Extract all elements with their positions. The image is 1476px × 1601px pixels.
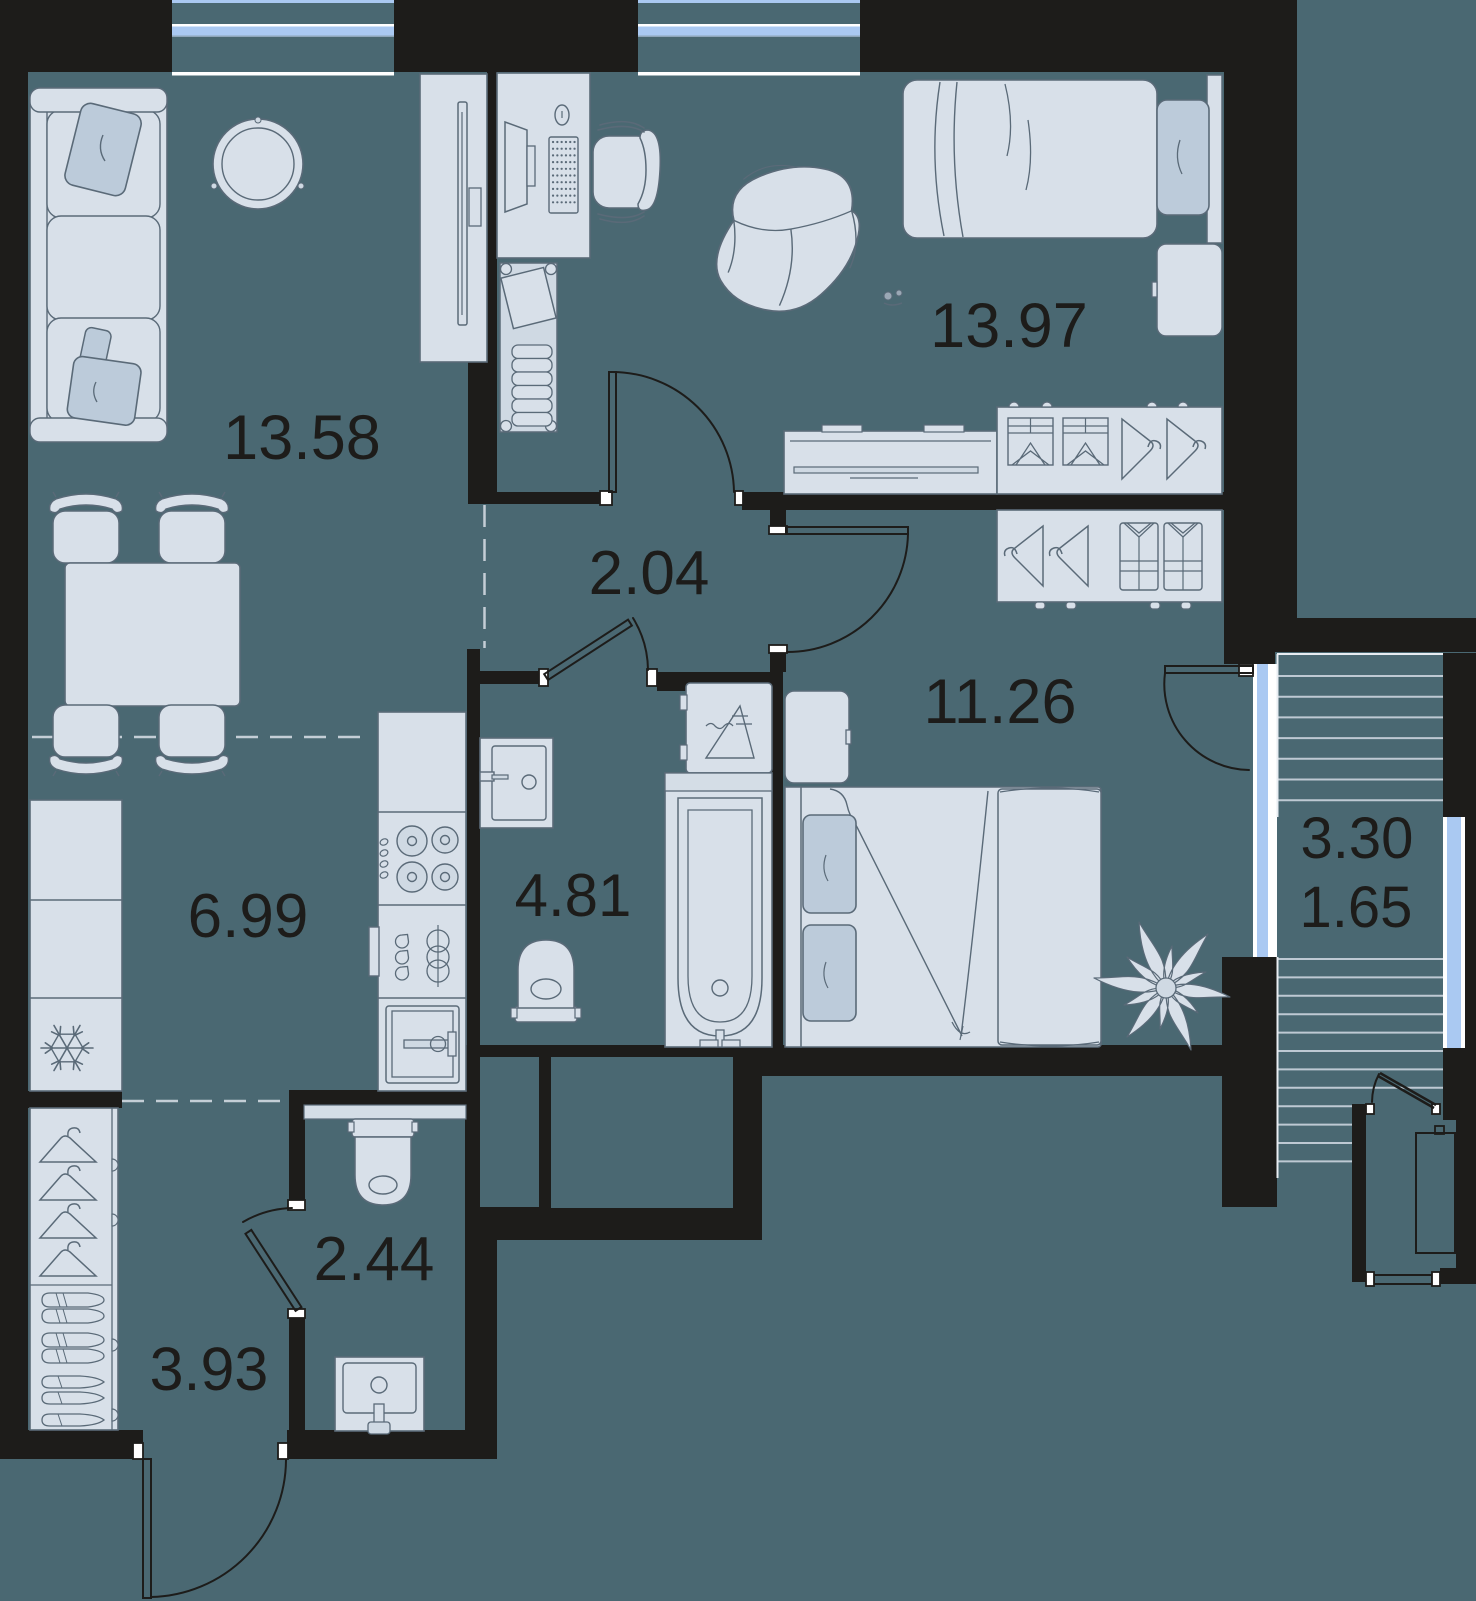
- svg-text:3.93: 3.93: [150, 1335, 269, 1403]
- svg-text:2.04: 2.04: [589, 539, 710, 608]
- svg-text:13.58: 13.58: [223, 403, 381, 473]
- svg-text:4.81: 4.81: [515, 862, 632, 929]
- svg-text:2.44: 2.44: [314, 1225, 435, 1294]
- svg-text:6.99: 6.99: [188, 882, 309, 951]
- svg-text:3.30: 3.30: [1301, 806, 1414, 871]
- svg-text:13.97: 13.97: [930, 291, 1088, 361]
- svg-text:11.26: 11.26: [924, 667, 1077, 737]
- svg-text:1.65: 1.65: [1300, 875, 1413, 940]
